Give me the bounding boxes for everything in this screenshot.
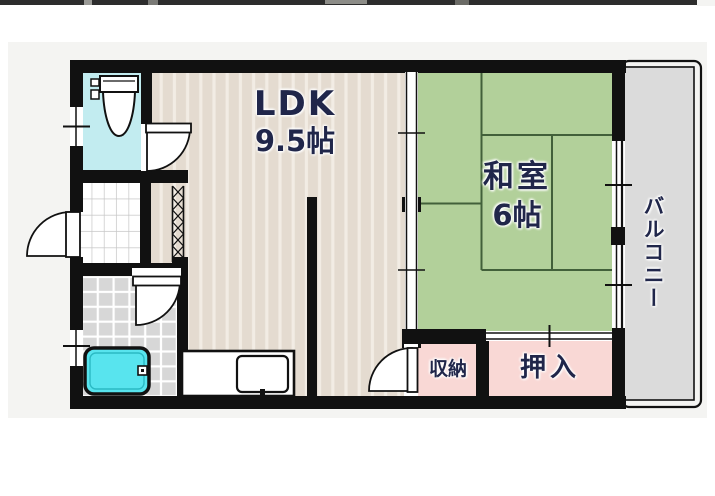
floorplan-canvas [0, 0, 715, 496]
balcony-label: バルコニー [636, 167, 664, 337]
top-cropped-strip [0, 0, 715, 6]
washitsu-size-label: 6帖 [452, 200, 582, 230]
kitchen-counter-icon [182, 351, 294, 402]
entrance-hall-tiles [80, 183, 141, 264]
bathtub-icon [85, 348, 149, 394]
ldk-label: LDK [228, 87, 362, 123]
storage-label: 収納 [418, 360, 478, 380]
floorplan-screenshot: LDK 9.5帖 和室 6帖 バルコニー 収納 押入 [0, 0, 715, 496]
washitsu-label: 和室 [452, 161, 582, 194]
closet-label: 押入 [489, 355, 611, 382]
ldk-size-label: 9.5帖 [228, 126, 362, 156]
